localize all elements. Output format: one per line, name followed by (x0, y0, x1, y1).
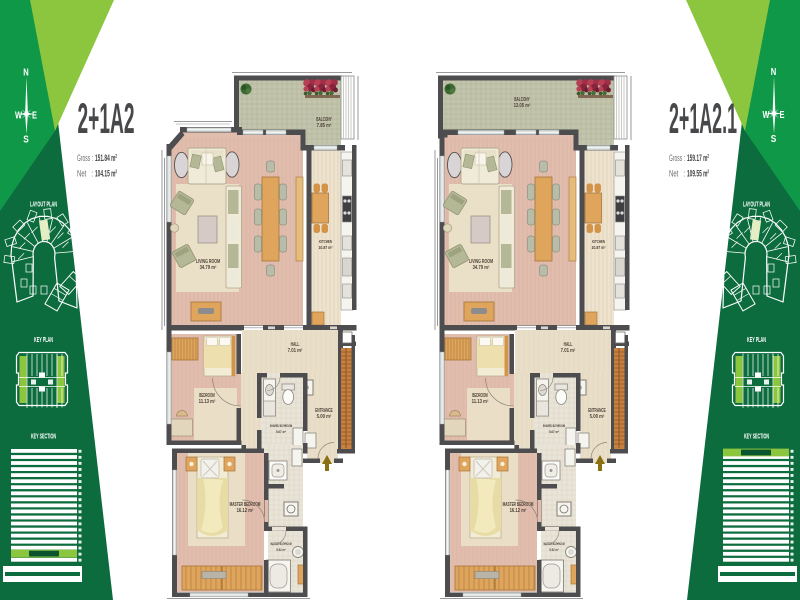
svg-text:5.67 m²: 5.67 m² (276, 430, 287, 434)
svg-text:KEY SECTION: KEY SECTION (31, 434, 56, 441)
svg-text:11.13 m²: 11.13 m² (472, 399, 489, 405)
svg-text:34.79 m²: 34.79 m² (200, 265, 217, 271)
svg-text:10.87 m²: 10.87 m² (318, 245, 333, 250)
svg-text:MASTER BATHROOM: MASTER BATHROOM (543, 542, 564, 546)
svg-text:7.01 m²: 7.01 m² (561, 348, 576, 354)
svg-text:5.00 m²: 5.00 m² (590, 414, 605, 420)
svg-text:W: W (15, 111, 22, 122)
svg-text:S: S (771, 134, 777, 145)
svg-text:11.13 m²: 11.13 m² (199, 399, 216, 405)
svg-text:KEY PLAN: KEY PLAN (747, 337, 766, 344)
svg-text:10.87 m²: 10.87 m² (591, 245, 606, 250)
svg-text:104.15 m²: 104.15 m² (95, 169, 117, 180)
svg-text:2+1A2.1: 2+1A2.1 (669, 96, 737, 143)
svg-text:SHARED BATHROOM: SHARED BATHROOM (543, 424, 566, 428)
svg-text:151.84 m²: 151.84 m² (95, 153, 117, 164)
svg-text:7.85 m²: 7.85 m² (317, 123, 332, 129)
svg-text:N: N (771, 67, 777, 78)
svg-text:E: E (780, 110, 785, 121)
svg-text:2+1A2: 2+1A2 (78, 96, 135, 143)
svg-text:SHARED BATHROOM: SHARED BATHROOM (270, 424, 293, 428)
svg-text:KEY SECTION: KEY SECTION (744, 434, 769, 441)
svg-text:5.67 m²: 5.67 m² (549, 430, 560, 434)
svg-text:W: W (763, 110, 770, 121)
svg-text:159.17 m²: 159.17 m² (687, 153, 709, 164)
svg-text:KEY PLAN: KEY PLAN (34, 337, 53, 344)
svg-text:Net :: Net : (669, 169, 685, 180)
svg-text:5.52 m²: 5.52 m² (276, 548, 285, 552)
svg-text:N: N (23, 68, 29, 79)
svg-text:LAYOUT PLAN: LAYOUT PLAN (743, 202, 770, 209)
svg-text:16.12 m²: 16.12 m² (510, 508, 527, 514)
svg-text:MASTER BATHROOM: MASTER BATHROOM (270, 542, 291, 546)
svg-text:S: S (23, 135, 29, 146)
svg-text:LAYOUT PLAN: LAYOUT PLAN (30, 202, 57, 209)
svg-text:13.05 m²: 13.05 m² (514, 103, 531, 109)
svg-text:5.00 m²: 5.00 m² (317, 414, 332, 420)
svg-text:7.01 m²: 7.01 m² (288, 348, 303, 354)
svg-text:16.12 m²: 16.12 m² (237, 508, 254, 514)
svg-text:KITCHEN: KITCHEN (319, 239, 332, 244)
svg-text:5.52 m²: 5.52 m² (549, 548, 558, 552)
svg-text:109.55 m²: 109.55 m² (687, 169, 709, 180)
svg-text:Gross :: Gross : (669, 153, 685, 164)
svg-text:Gross :: Gross : (77, 153, 93, 164)
svg-text:34.79 m²: 34.79 m² (473, 265, 490, 271)
svg-text:KITCHEN: KITCHEN (592, 239, 605, 244)
svg-text:Net :: Net : (77, 169, 93, 180)
svg-text:E: E (32, 111, 37, 122)
